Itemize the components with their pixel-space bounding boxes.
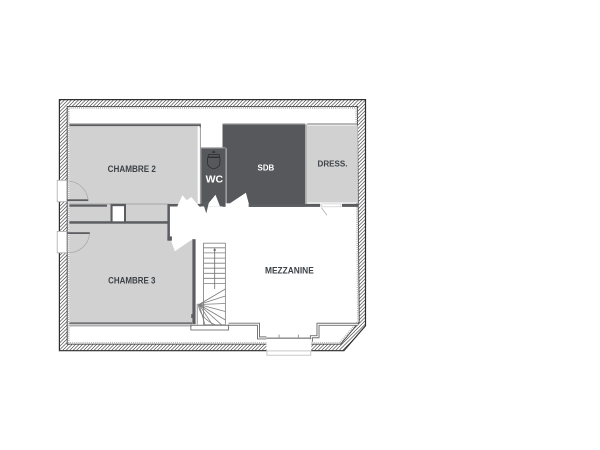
svg-text:CHAMBRE 3: CHAMBRE 3 bbox=[108, 276, 155, 287]
svg-text:CHAMBRE 2: CHAMBRE 2 bbox=[108, 164, 156, 175]
svg-text:DRESS.: DRESS. bbox=[318, 159, 348, 169]
svg-text:MEZZANINE: MEZZANINE bbox=[265, 265, 314, 276]
svg-text:WC: WC bbox=[206, 175, 224, 186]
svg-text:SDB: SDB bbox=[258, 163, 275, 173]
